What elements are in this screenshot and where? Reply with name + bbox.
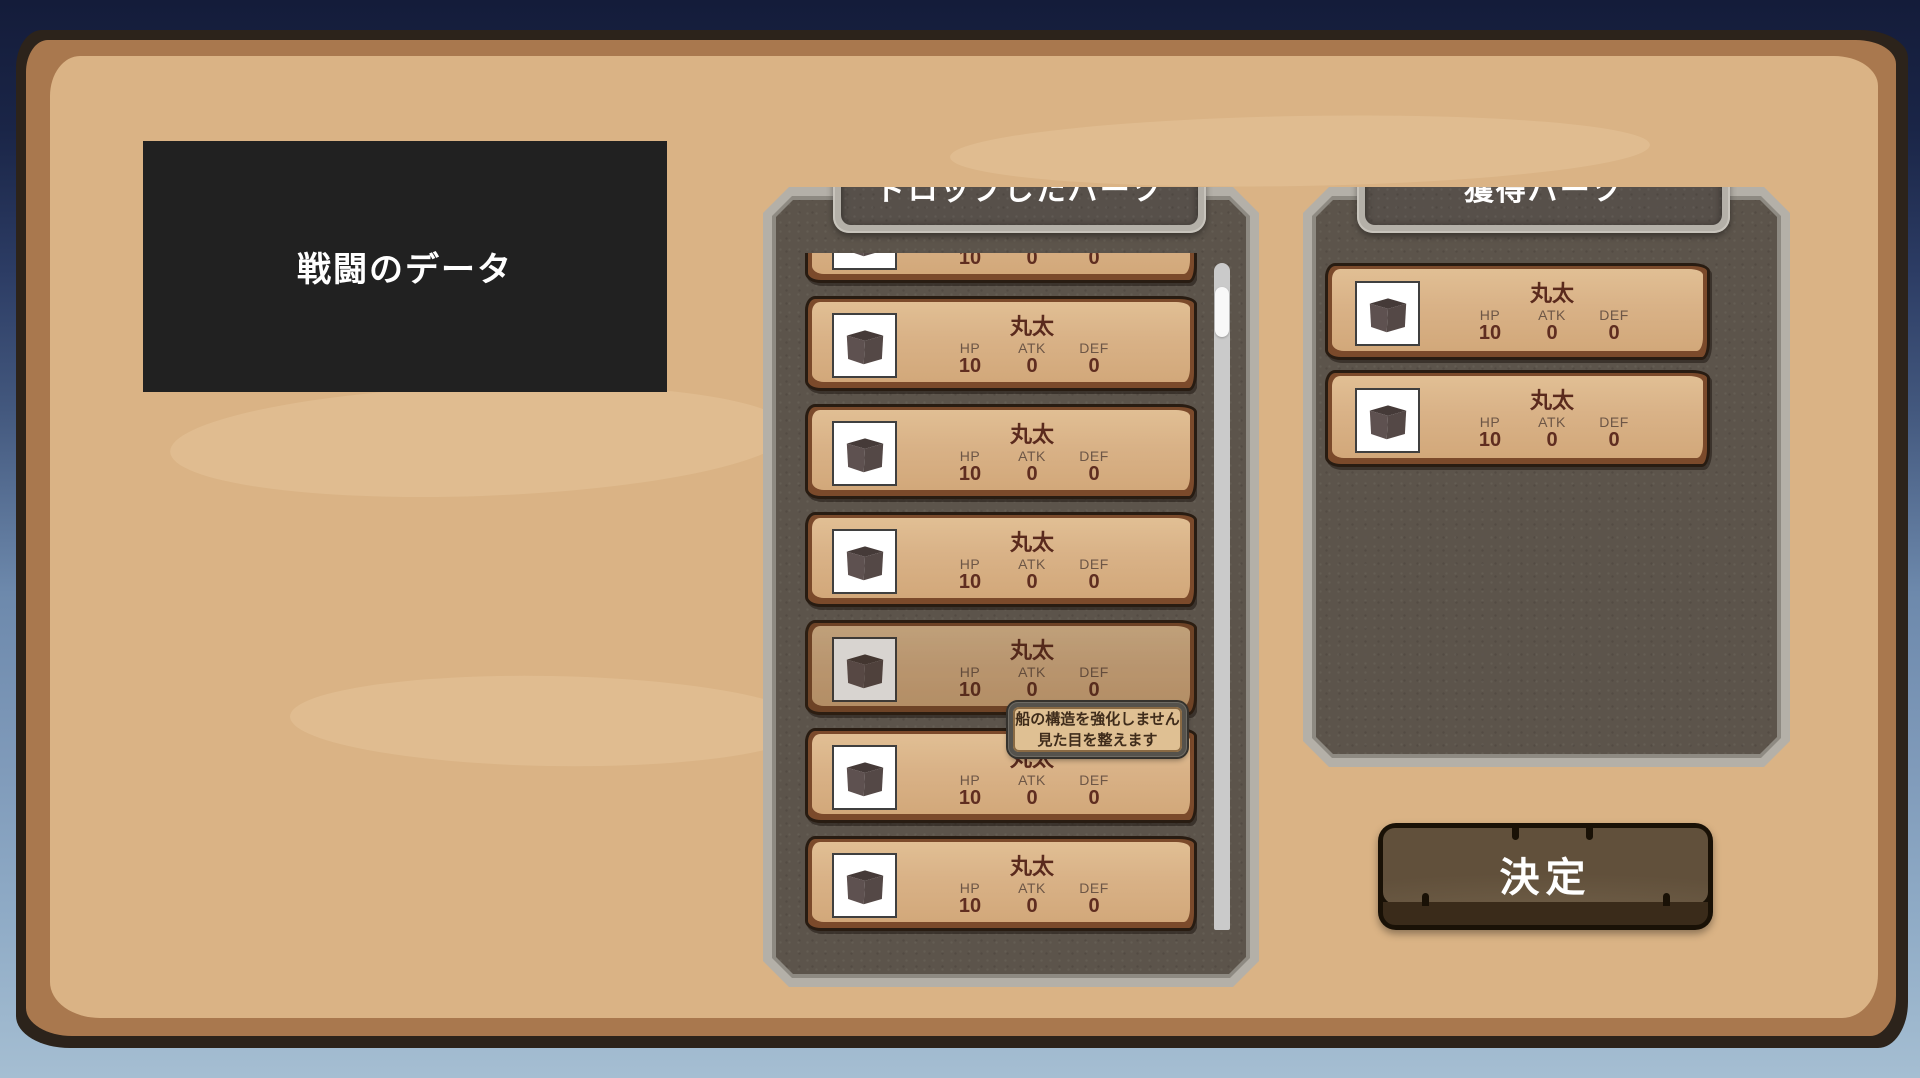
hp-value: 10 <box>939 463 1001 486</box>
hp-label: HP <box>939 880 1001 896</box>
hp-value: 10 <box>939 253 1001 270</box>
hp-value: 10 <box>939 355 1001 378</box>
atk-label: ATK <box>1001 664 1063 680</box>
def-value: 0 <box>1583 322 1645 345</box>
part-name: 丸太 <box>939 309 1125 341</box>
def-label: DEF <box>1063 340 1125 356</box>
wood-cube-icon <box>1362 288 1414 340</box>
dropped-part-card-selected[interactable]: 丸太 HP10 ATK0 DEF0 <box>805 620 1197 715</box>
dropped-part-card[interactable]: 丸太 HP10 ATK0 DEF0 <box>805 512 1197 607</box>
atk-label: ATK <box>1001 880 1063 896</box>
part-stats: HP10 ATK0 DEF0 <box>1459 414 1645 452</box>
atk-value: 0 <box>1001 679 1063 702</box>
dropped-parts-list[interactable]: 丸太 HP10 ATK0 DEF0 丸太 HP10 ATK0 DEF0 <box>805 253 1197 941</box>
confirm-button-label: 決定 <box>1378 845 1713 903</box>
def-value: 0 <box>1063 895 1125 918</box>
atk-value: 0 <box>1521 429 1583 452</box>
atk-value: 0 <box>1001 787 1063 810</box>
battle-data-box: 戦闘のデータ <box>143 141 667 392</box>
part-icon-box <box>832 253 897 270</box>
part-stats: HP10 ATK0 DEF0 <box>939 664 1125 702</box>
def-label: DEF <box>1583 414 1645 430</box>
part-name: 丸太 <box>939 849 1125 881</box>
part-stats: HP10 ATK0 DEF0 <box>939 448 1125 486</box>
hp-label: HP <box>939 448 1001 464</box>
wood-notch <box>1512 827 1519 840</box>
part-icon-box <box>1355 281 1420 346</box>
atk-value: 0 <box>1001 355 1063 378</box>
acquired-parts-panel: 獲得パーツ 丸太 HP10 ATK0 DEF0 丸太 <box>1303 187 1790 767</box>
battle-data-label: 戦闘のデータ <box>297 242 513 291</box>
def-label: DEF <box>1583 307 1645 323</box>
dropped-part-card[interactable]: 丸太 HP10 ATK0 DEF0 <box>805 836 1197 931</box>
acquired-part-card[interactable]: 丸太 HP10 ATK0 DEF0 <box>1325 370 1710 467</box>
def-value: 0 <box>1063 571 1125 594</box>
wood-cube-icon <box>839 860 891 912</box>
card-parchment <box>812 626 1190 706</box>
wood-notch <box>1586 827 1593 840</box>
battle-result-screen: 戦闘のデータ ドロップしたパーツ 丸太 HP10 ATK0 DEF0 <box>0 0 1920 1078</box>
hp-label: HP <box>939 340 1001 356</box>
atk-label: ATK <box>1001 556 1063 572</box>
dropped-part-card[interactable]: 丸太 HP10 ATK0 DEF0 <box>805 253 1197 283</box>
wood-cube-icon <box>839 536 891 588</box>
part-icon-box <box>832 853 897 918</box>
atk-label: ATK <box>1521 307 1583 323</box>
atk-label: ATK <box>1001 340 1063 356</box>
part-icon-box <box>1355 388 1420 453</box>
parchment-streak <box>168 375 791 507</box>
scrollbar-thumb[interactable] <box>1215 287 1229 337</box>
def-value: 0 <box>1063 253 1125 270</box>
def-label: DEF <box>1063 664 1125 680</box>
scrollbar-track[interactable] <box>1214 263 1230 930</box>
acquired-part-card[interactable]: 丸太 HP10 ATK0 DEF0 <box>1325 263 1710 360</box>
part-name: 丸太 <box>939 633 1125 665</box>
acquired-parts-list: 丸太 HP10 ATK0 DEF0 丸太 HP10 ATK0 DEF0 <box>1325 263 1710 477</box>
part-icon-box <box>832 313 897 378</box>
tooltip-line-2: 見た目を整えます <box>1037 730 1157 751</box>
atk-label: ATK <box>1001 772 1063 788</box>
atk-label: ATK <box>1521 414 1583 430</box>
confirm-button[interactable]: 決定 <box>1378 823 1713 930</box>
def-label: DEF <box>1063 772 1125 788</box>
wood-cube-icon <box>839 428 891 480</box>
hp-value: 10 <box>939 571 1001 594</box>
atk-value: 0 <box>1001 895 1063 918</box>
hp-label: HP <box>939 772 1001 788</box>
button-bottom-edge <box>1383 902 1708 925</box>
atk-value: 0 <box>1001 463 1063 486</box>
part-stats: HP10 ATK0 DEF0 <box>939 556 1125 594</box>
def-label: DEF <box>1063 448 1125 464</box>
atk-label: ATK <box>1001 448 1063 464</box>
wood-cube-icon <box>839 644 891 696</box>
atk-value: 0 <box>1001 571 1063 594</box>
tooltip-parchment: 船の構造を強化しません 見た目を整えます <box>1013 707 1182 752</box>
def-label: DEF <box>1063 556 1125 572</box>
hp-value: 10 <box>1459 322 1521 345</box>
part-icon-box <box>832 421 897 486</box>
parchment-streak <box>289 671 810 770</box>
dropped-parts-panel: ドロップしたパーツ 丸太 HP10 ATK0 DEF0 <box>763 187 1259 987</box>
wood-cube-icon <box>839 253 891 264</box>
part-stats: HP10 ATK0 DEF0 <box>939 253 1125 270</box>
part-stats: HP10 ATK0 DEF0 <box>939 880 1125 918</box>
part-name: 丸太 <box>1459 383 1645 415</box>
dropped-part-card[interactable]: 丸太 HP10 ATK0 DEF0 <box>805 296 1197 391</box>
hp-value: 10 <box>939 679 1001 702</box>
hp-label: HP <box>939 556 1001 572</box>
def-value: 0 <box>1063 787 1125 810</box>
def-value: 0 <box>1063 679 1125 702</box>
def-value: 0 <box>1063 355 1125 378</box>
part-icon-box <box>832 529 897 594</box>
tooltip-line-1: 船の構造を強化しません <box>1015 709 1180 730</box>
hp-label: HP <box>939 664 1001 680</box>
wood-cube-icon <box>839 752 891 804</box>
dropped-part-card[interactable]: 丸太 HP10 ATK0 DEF0 <box>805 404 1197 499</box>
hp-label: HP <box>1459 414 1521 430</box>
wood-cube-icon <box>1362 395 1414 447</box>
part-name: 丸太 <box>939 525 1125 557</box>
hp-value: 10 <box>939 787 1001 810</box>
part-icon-box <box>832 637 897 702</box>
part-name: 丸太 <box>939 417 1125 449</box>
parchment-streak <box>949 110 1650 192</box>
hp-value: 10 <box>939 895 1001 918</box>
part-name: 丸太 <box>1459 276 1645 308</box>
def-value: 0 <box>1583 429 1645 452</box>
part-stats: HP10 ATK0 DEF0 <box>1459 307 1645 345</box>
def-value: 0 <box>1063 463 1125 486</box>
def-label: DEF <box>1063 880 1125 896</box>
part-icon-box <box>832 745 897 810</box>
atk-value: 0 <box>1001 253 1063 270</box>
hp-value: 10 <box>1459 429 1521 452</box>
atk-value: 0 <box>1521 322 1583 345</box>
part-tooltip: 船の構造を強化しません 見た目を整えます <box>1008 702 1187 757</box>
part-stats: HP10 ATK0 DEF0 <box>939 340 1125 378</box>
part-stats: HP10 ATK0 DEF0 <box>939 772 1125 810</box>
hp-label: HP <box>1459 307 1521 323</box>
wood-cube-icon <box>839 320 891 372</box>
